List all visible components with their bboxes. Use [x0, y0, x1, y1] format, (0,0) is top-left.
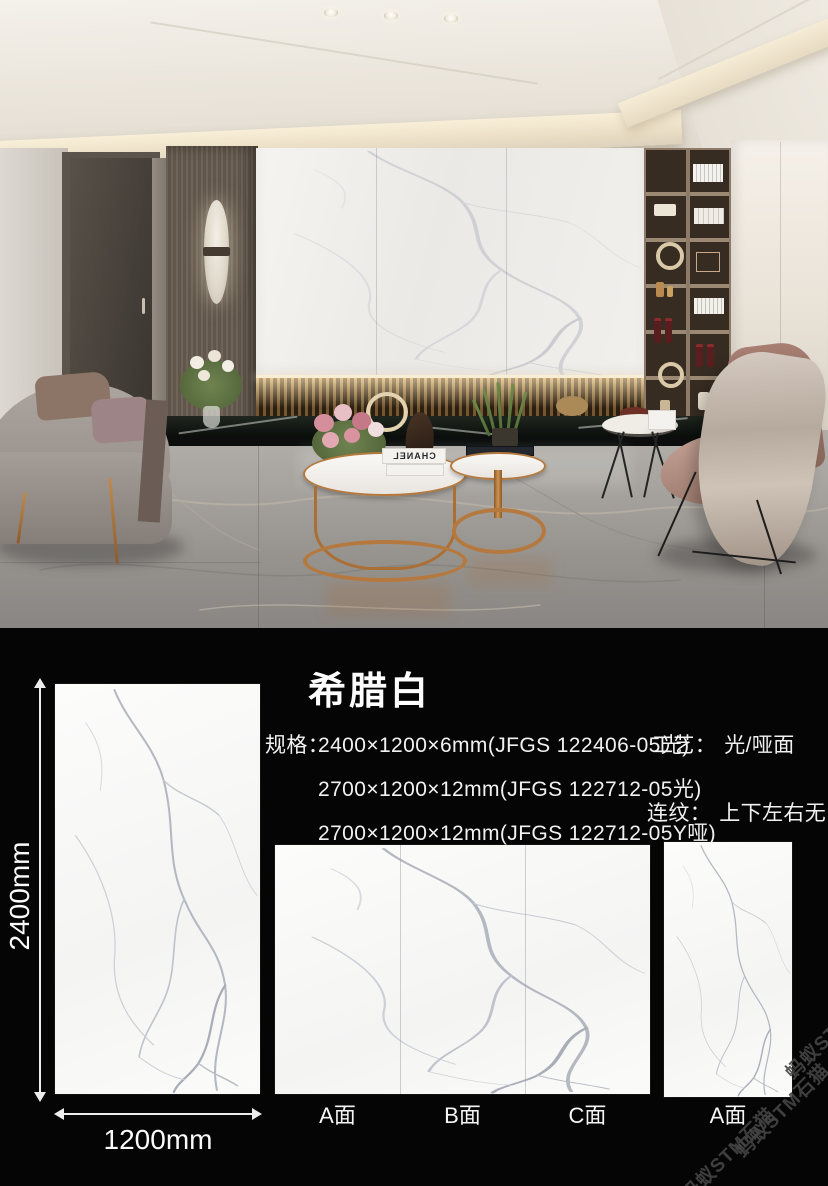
flower — [190, 356, 204, 369]
plinth-vein — [178, 416, 297, 435]
pattern-value: 上下左右无限连纹 — [719, 802, 828, 825]
wine-bottle — [696, 344, 703, 367]
hero-photo: CHANEL — [0, 0, 828, 628]
tile-sample-tall — [55, 684, 260, 1094]
table-reflection — [468, 558, 552, 586]
wire-basket — [696, 252, 720, 272]
coffee-table-base-ring — [303, 540, 467, 582]
sconce-band — [203, 247, 230, 256]
rose — [322, 432, 339, 448]
door-handle — [142, 298, 145, 314]
book-brand-text: CHANEL — [383, 449, 445, 463]
sofa-pillow — [91, 396, 152, 444]
wall-panel-seam — [506, 148, 507, 380]
arrowhead-left — [54, 1108, 64, 1120]
panel-label-b: B面 — [400, 1098, 525, 1130]
marble-feature-wall — [256, 148, 646, 380]
downlight — [384, 11, 398, 20]
rose — [344, 428, 360, 443]
flower — [222, 360, 234, 372]
ring-ornament — [656, 242, 684, 270]
ring-ornament — [658, 362, 684, 388]
decor-book: CHANEL — [382, 448, 446, 464]
poster: CHANEL 希腊白 — [0, 0, 828, 1186]
books — [693, 164, 723, 182]
rose — [368, 422, 384, 437]
wine-bottle — [654, 318, 661, 343]
horizontal-dimension-arrow — [62, 1113, 254, 1115]
side-table-base-ring — [452, 508, 546, 554]
panel-label-a: A面 — [275, 1098, 400, 1130]
wood-slat-strip — [256, 378, 646, 418]
vertical-dimension-arrow — [39, 686, 41, 1094]
vase — [667, 286, 673, 297]
spec-line-2: 2700×1200×12mm(JFGS 122712-05光) — [318, 773, 702, 803]
rose — [334, 404, 352, 421]
floor-tile-seam — [258, 444, 259, 628]
floor-books — [648, 410, 676, 430]
tile-panel-seam — [525, 845, 526, 1094]
flower-vase — [203, 406, 220, 428]
books — [694, 208, 724, 224]
width-dimension-label: 1200mm — [78, 1124, 238, 1156]
rattan-decor — [556, 396, 588, 416]
wine-bottle — [665, 318, 672, 343]
craft-row: 工艺：光/哑面 — [652, 729, 795, 759]
rose — [314, 414, 334, 432]
panel-label-c: C面 — [525, 1098, 650, 1130]
height-dimension-label: 2400mm — [4, 831, 36, 961]
downlight — [444, 14, 458, 23]
tile-sample-right — [664, 842, 792, 1097]
decor-book — [386, 464, 444, 476]
arrowhead-right — [252, 1108, 262, 1120]
product-title: 希腊白 — [308, 660, 431, 715]
arrowhead-up — [34, 678, 46, 688]
flower — [198, 370, 210, 381]
downlight — [324, 8, 338, 17]
craft-label: 工艺： — [652, 734, 716, 757]
tile-sample-wide — [275, 845, 650, 1094]
wine-bottle — [707, 344, 714, 367]
spec-line-1: 2400×1200×6mm(JFGS 122406-05光) — [318, 729, 690, 759]
wall-panel-seam — [376, 148, 377, 380]
pattern-label: 连纹： — [647, 802, 711, 825]
pattern-row: 连纹：上下左右无限连纹 — [647, 797, 828, 827]
arrowhead-down — [34, 1092, 46, 1102]
vase — [656, 282, 664, 297]
spec-sheet: 希腊白 2400mm 1200mm 规格： 2400×1200×6mm(JFGS… — [0, 628, 828, 1186]
shelf-divider — [686, 150, 690, 432]
craft-value: 光/哑面 — [724, 734, 794, 757]
flower — [208, 350, 221, 362]
books — [694, 298, 724, 314]
candles — [654, 204, 676, 216]
plant-pot — [492, 428, 518, 448]
table-reflection — [326, 582, 450, 616]
tile-panel-seam — [400, 845, 401, 1094]
